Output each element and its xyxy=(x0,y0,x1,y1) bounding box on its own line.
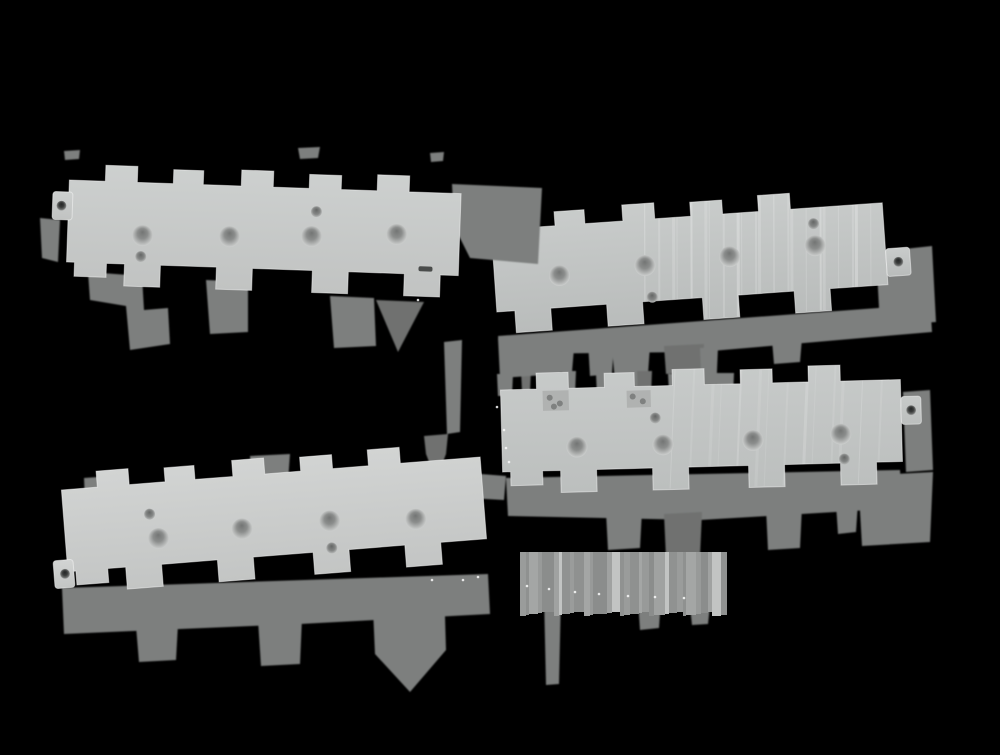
shadow-stripe xyxy=(665,552,669,614)
shadow-blob xyxy=(258,618,302,666)
edge-glint xyxy=(627,595,630,598)
shadow-blob xyxy=(606,510,642,550)
shadow-stripe xyxy=(701,552,708,613)
shadow-stripe xyxy=(649,552,654,616)
shadow-stripe xyxy=(686,552,696,615)
shadow-blob xyxy=(664,512,702,558)
shadow-stripe xyxy=(520,552,526,616)
shadow-stripe xyxy=(562,552,570,614)
shadow-stripe xyxy=(554,552,559,616)
shadow-stripe xyxy=(620,552,624,616)
striped-shadow-band xyxy=(520,552,727,616)
shadow-stripe xyxy=(677,552,683,612)
shadow-blob xyxy=(498,334,562,378)
shadow-blob xyxy=(298,147,320,159)
edge-glint xyxy=(431,579,434,582)
shadow-stripe xyxy=(607,552,612,613)
edge-glint xyxy=(505,447,508,450)
slot-cutout xyxy=(418,266,432,271)
shadow-stripe xyxy=(526,552,529,615)
shadow-stripe xyxy=(584,552,590,616)
product-photo-figure xyxy=(0,0,1000,755)
edge-glint xyxy=(526,585,529,588)
shadow-stripe xyxy=(654,552,665,615)
edge-glint xyxy=(508,461,511,464)
shadow-blob xyxy=(330,296,376,348)
milled-notch xyxy=(627,390,651,408)
edge-glint xyxy=(683,597,686,600)
shadow-stripe xyxy=(669,552,677,613)
edge-glint xyxy=(477,576,480,579)
shadow-stripe xyxy=(574,552,584,612)
shadow-stripe xyxy=(590,552,593,615)
shadow-stripe xyxy=(696,552,701,614)
edge-glint xyxy=(462,579,465,582)
edge-glint xyxy=(598,593,601,596)
shadow-stripe xyxy=(542,552,554,612)
shadow-stripe xyxy=(639,552,642,613)
shadow-blob xyxy=(430,152,444,162)
edge-glint xyxy=(417,299,420,302)
edge-glint xyxy=(496,406,499,409)
shadow-blob xyxy=(588,340,614,376)
edge-glint xyxy=(503,429,506,432)
shadow-stripe xyxy=(559,552,562,615)
shadow-stripe xyxy=(721,552,727,615)
shadow-stripe xyxy=(630,552,639,614)
plates-product-photo xyxy=(0,0,1000,755)
shadow-blob xyxy=(766,506,802,550)
edge-glint xyxy=(574,591,577,594)
shadow-blob xyxy=(64,150,80,160)
shadow-blob xyxy=(836,502,858,534)
shadow-stripe xyxy=(593,552,607,614)
shadow-stripe xyxy=(570,552,574,613)
shadow-stripe xyxy=(712,552,721,616)
shadow-blob xyxy=(136,624,178,662)
shadow-blob xyxy=(444,340,462,434)
edge-glint xyxy=(654,596,657,599)
edge-glint xyxy=(548,588,551,591)
shadow-blob xyxy=(40,218,60,262)
shadow-stripe xyxy=(642,552,649,612)
shadow-blob xyxy=(772,338,802,364)
shadow-stripe xyxy=(683,552,686,616)
shadow-stripe xyxy=(624,552,630,615)
shadow-stripe xyxy=(708,552,712,612)
shadow-stripe xyxy=(529,552,538,614)
shadow-stripe xyxy=(538,552,542,613)
shadow-stripe xyxy=(612,552,620,612)
